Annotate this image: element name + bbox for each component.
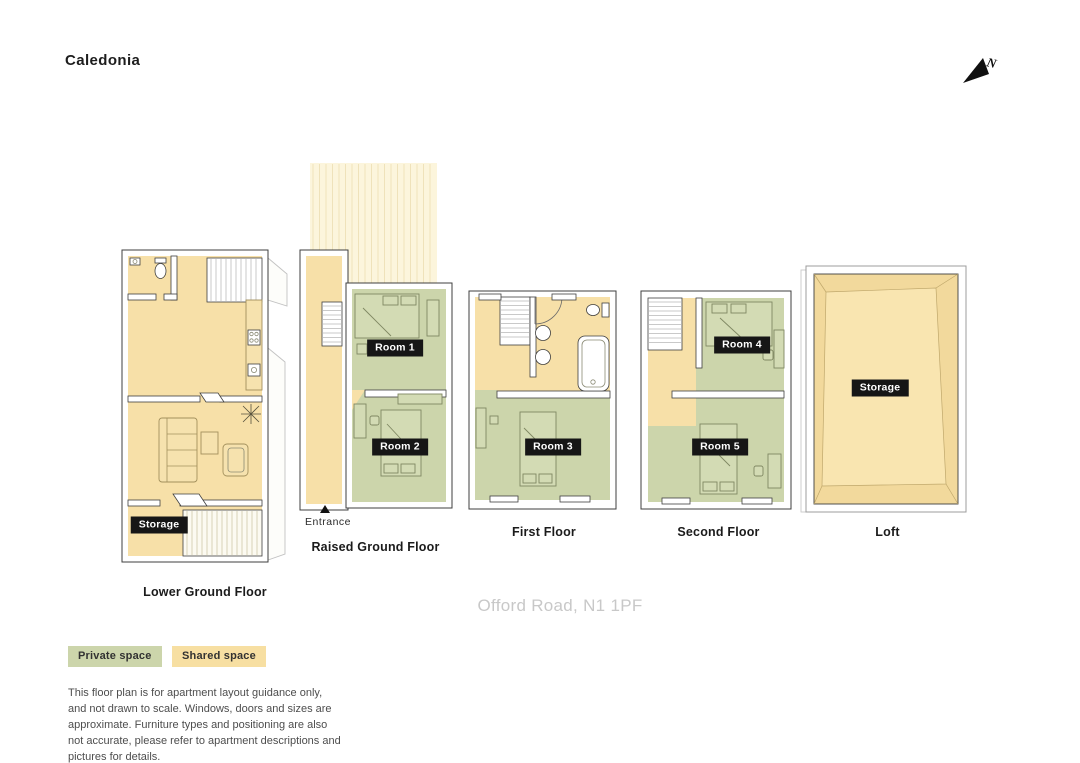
stairs-icon <box>322 302 342 346</box>
bathtub-icon <box>578 336 609 391</box>
room-badge: Room 2 <box>372 439 428 456</box>
stool-icon <box>370 416 379 425</box>
stairs-icon <box>207 258 262 302</box>
kitchen-counter-icon <box>246 300 262 390</box>
page-title: Caledonia <box>65 52 140 69</box>
bed-icon <box>700 424 737 494</box>
wardrobe-icon <box>476 408 486 448</box>
stairs-icon <box>648 298 682 350</box>
floor-caption: Raised Ground Floor <box>293 540 458 554</box>
north-arrow-icon: N <box>960 50 1000 90</box>
room-badge: Room 1 <box>367 340 423 357</box>
stairs-icon <box>183 510 262 556</box>
first-floor-drawing <box>464 286 624 516</box>
floorplan-second-floor: Room 4 Room 5 Second Floor <box>636 286 801 546</box>
toilet-icon <box>155 258 166 279</box>
armchair-icon <box>223 444 248 476</box>
room-badge: Room 4 <box>714 337 770 354</box>
plant-icon <box>241 404 261 424</box>
legend: Private space Shared space <box>68 646 272 667</box>
floorplan-loft: Storage Loft <box>800 258 975 548</box>
desk-icon <box>774 330 784 368</box>
floor-caption: Loft <box>800 525 975 539</box>
window-icon <box>560 496 590 502</box>
disclaimer-text: This floor plan is for apartment layout … <box>68 686 342 763</box>
second-floor-drawing <box>636 286 801 516</box>
window-icon <box>479 294 501 300</box>
wardrobe-icon <box>354 404 366 438</box>
coffee-table-icon <box>201 432 218 454</box>
room-badge: Storage <box>131 517 188 534</box>
floor-caption: Second Floor <box>636 525 801 539</box>
floorplan-first-floor: Room 3 First Floor <box>464 286 624 546</box>
bedside-table-icon <box>490 416 498 424</box>
floor-caption: First Floor <box>464 525 624 539</box>
svg-text:N: N <box>984 54 998 71</box>
sofa-icon <box>159 418 197 482</box>
room-badge: Room 3 <box>525 439 581 456</box>
window-icon <box>742 498 772 504</box>
legend-private-space-chip: Private space <box>68 646 162 667</box>
sink-icon <box>130 258 140 265</box>
floor-caption: Lower Ground Floor <box>115 585 295 599</box>
window-icon <box>490 496 518 502</box>
wardrobe-icon <box>427 300 439 336</box>
shelf-icon <box>398 394 442 404</box>
bedside-table-icon <box>357 344 367 354</box>
legend-shared-space-chip: Shared space <box>172 646 266 667</box>
floorplan-page: Caledonia N <box>0 0 1080 763</box>
stairs-icon <box>500 297 530 345</box>
room-badge: Storage <box>852 380 909 397</box>
desk-icon <box>768 454 781 488</box>
window-icon <box>662 498 690 504</box>
floorplan-lower-ground-floor: Storage Lower Ground Floor <box>115 244 295 609</box>
entrance-label: Entrance <box>305 516 351 528</box>
room-badge: Room 5 <box>692 439 748 456</box>
bed-icon <box>355 294 419 338</box>
entrance-triangle-icon <box>320 505 330 513</box>
address: Offord Road, N1 1PF <box>477 596 642 616</box>
window-icon <box>552 294 576 300</box>
floorplan-raised-ground-floor: Room 1 Room 2 Entrance Raised Ground Flo… <box>293 158 458 558</box>
stool-icon <box>754 466 763 476</box>
